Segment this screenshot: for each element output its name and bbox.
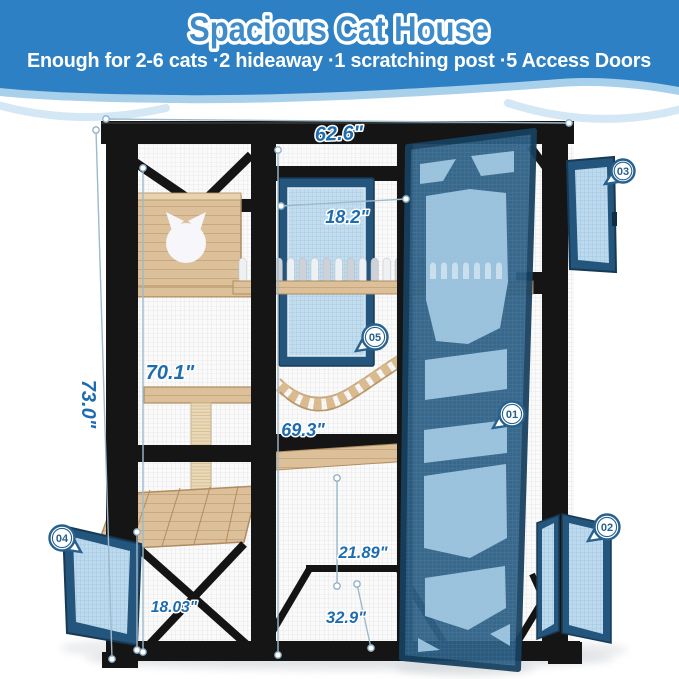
page-title: Spacious Cat House	[189, 10, 489, 49]
dim-top-width: 62.6"	[314, 122, 364, 146]
dim-left-inner-height: 70.1"	[146, 362, 195, 384]
product-image: 62.6" 18.2" 70.1" 73.0" 69.3" 21.89" 32.…	[0, 0, 679, 679]
dim-depth: 32.9"	[326, 609, 366, 627]
large-front-door-01	[402, 131, 534, 669]
dim-mid-inner-height: 69.3"	[281, 420, 325, 440]
header-banner: Spacious Cat House Enough for 2-6 cats ·…	[0, 0, 679, 110]
dim-platform-to-ground: 18.03"	[151, 599, 198, 616]
svg-text:02: 02	[601, 522, 613, 534]
svg-text:05: 05	[369, 332, 381, 344]
svg-text:04: 04	[56, 533, 69, 545]
dim-lower-section-height: 21.89"	[337, 544, 387, 562]
svg-text:03: 03	[617, 166, 629, 178]
dim-overall-height: 73.0"	[77, 380, 99, 429]
page-subtitle: Enough for 2-6 cats ·2 hideaway ·1 scrat…	[27, 50, 651, 72]
dim-window-width: 18.2"	[325, 207, 369, 227]
svg-text:01: 01	[506, 409, 518, 421]
